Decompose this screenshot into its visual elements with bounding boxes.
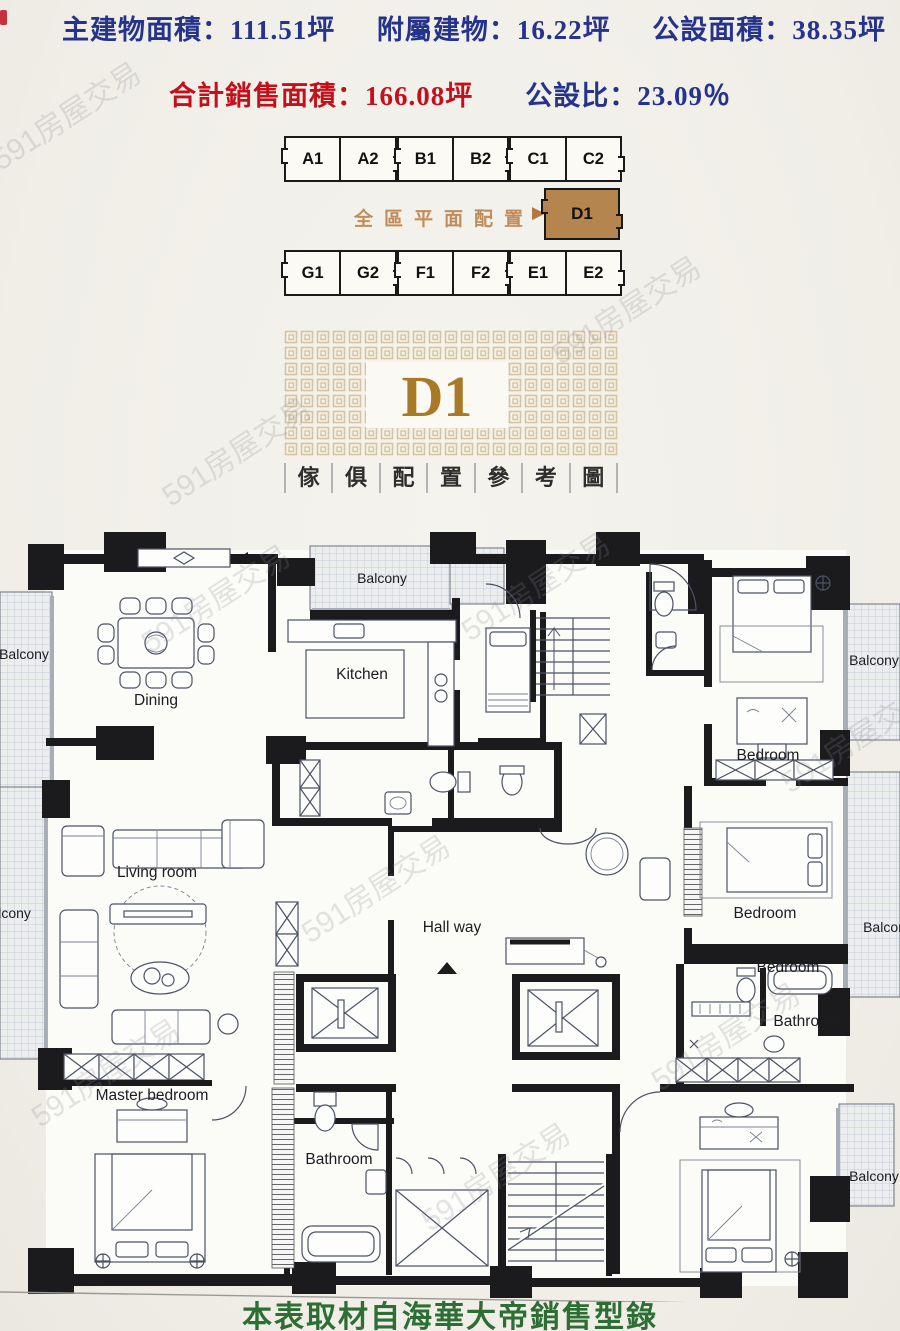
unit-e2[interactable]: E2 [565, 252, 620, 294]
stat-total-area: 合計銷售面積：166.08坪 [169, 74, 473, 113]
room-label-balcony-right2: Balcony [863, 919, 900, 935]
selector-caption: 全區平面配置 [354, 204, 534, 231]
stat-public-ratio: 公設比：23.09％ [525, 74, 731, 113]
unit-c2[interactable]: C2 [565, 138, 620, 180]
room-label-bedroom-small: Bedroom [757, 959, 820, 976]
caption-char: 俱 [331, 463, 378, 493]
caption-char: 圖 [569, 463, 618, 493]
room-label-master-bedroom: Master bedroom [96, 1087, 209, 1104]
unit-d1-selected[interactable]: D1 [544, 188, 620, 240]
unit-row-top: A1 A2 B1 B2 C1 C2 [284, 136, 622, 182]
unit-f2[interactable]: F2 [452, 252, 507, 294]
furniture-caption: 傢 俱 配 置 參 考 圖 [284, 463, 618, 493]
unit-block-g: G1 G2 [284, 250, 397, 296]
room-label-balcony-left2: Balcony [0, 905, 31, 921]
unit-selector: A1 A2 B1 B2 C1 C2 全區平面配置 ▶ D1 G1 G2 F1 [284, 136, 622, 296]
room-label-kitchen: Kitchen [336, 666, 388, 683]
floorplan: Balcony Kitchen Dining Balcony Living ro… [0, 532, 900, 1302]
unit-b1[interactable]: B1 [399, 138, 452, 180]
logo-unit-label: D1 [402, 364, 473, 429]
room-label-balcony-right1: Balcony [849, 652, 899, 668]
unit-block-e: E1 E2 [509, 250, 622, 296]
unit-e1[interactable]: E1 [511, 252, 564, 294]
room-label-bedroom-tr: Bedroom [737, 747, 800, 764]
d1-logo: D1 [284, 330, 618, 458]
unit-a1[interactable]: A1 [286, 138, 339, 180]
unit-a2[interactable]: A2 [339, 138, 394, 180]
room-label-bedroom-right: Bedroom [734, 905, 797, 922]
page: 主建物面積：111.51坪 附屬建物：16.22坪 公設面積：38.35坪 合計… [0, 0, 900, 1331]
watermark: 591房屋交易 [0, 49, 148, 179]
unit-b2[interactable]: B2 [452, 138, 507, 180]
room-label-balcony-left1: Balcony [0, 646, 49, 662]
unit-row-bottom: G1 G2 F1 F2 E1 E2 [284, 250, 622, 296]
unit-block-c: C1 C2 [509, 136, 622, 182]
stat-attached-area: 附屬建物：16.22坪 [377, 8, 611, 47]
caption-char: 配 [379, 463, 426, 493]
stats-line2: 合計銷售面積：166.08坪 公設比：23.09％ [0, 74, 900, 113]
unit-block-a: A1 A2 [284, 136, 397, 182]
unit-row-middle: 全區平面配置 ▶ D1 [284, 188, 622, 246]
unit-f1[interactable]: F1 [399, 252, 452, 294]
room-label-dining: Dining [134, 692, 178, 709]
room-label-bathroom-mid: Bathroom [305, 1151, 372, 1168]
stats-line1: 主建物面積：111.51坪 附屬建物：16.22坪 公設面積：38.35坪 [0, 8, 900, 47]
room-label-balcony-right3: Balcony [849, 1168, 899, 1184]
unit-block-b: B1 B2 [397, 136, 510, 182]
unit-block-f: F1 F2 [397, 250, 510, 296]
unit-g1[interactable]: G1 [286, 252, 339, 294]
room-label-balcony-top: Balcony [357, 570, 407, 586]
source-caption: 本表取材自海華大帝銷售型錄 [0, 1292, 900, 1331]
room-label-living-room: Living room [117, 864, 197, 881]
caption-char: 傢 [284, 463, 331, 493]
unit-c1[interactable]: C1 [511, 138, 564, 180]
caption-char: 置 [426, 463, 473, 493]
stat-main-area: 主建物面積：111.51坪 [62, 8, 335, 47]
caption-char: 考 [521, 463, 568, 493]
caption-char: 參 [474, 463, 521, 493]
room-label-hall-way: Hall way [423, 919, 482, 936]
stat-public-area: 公設面積：38.35坪 [652, 8, 886, 47]
unit-g2[interactable]: G2 [339, 252, 394, 294]
